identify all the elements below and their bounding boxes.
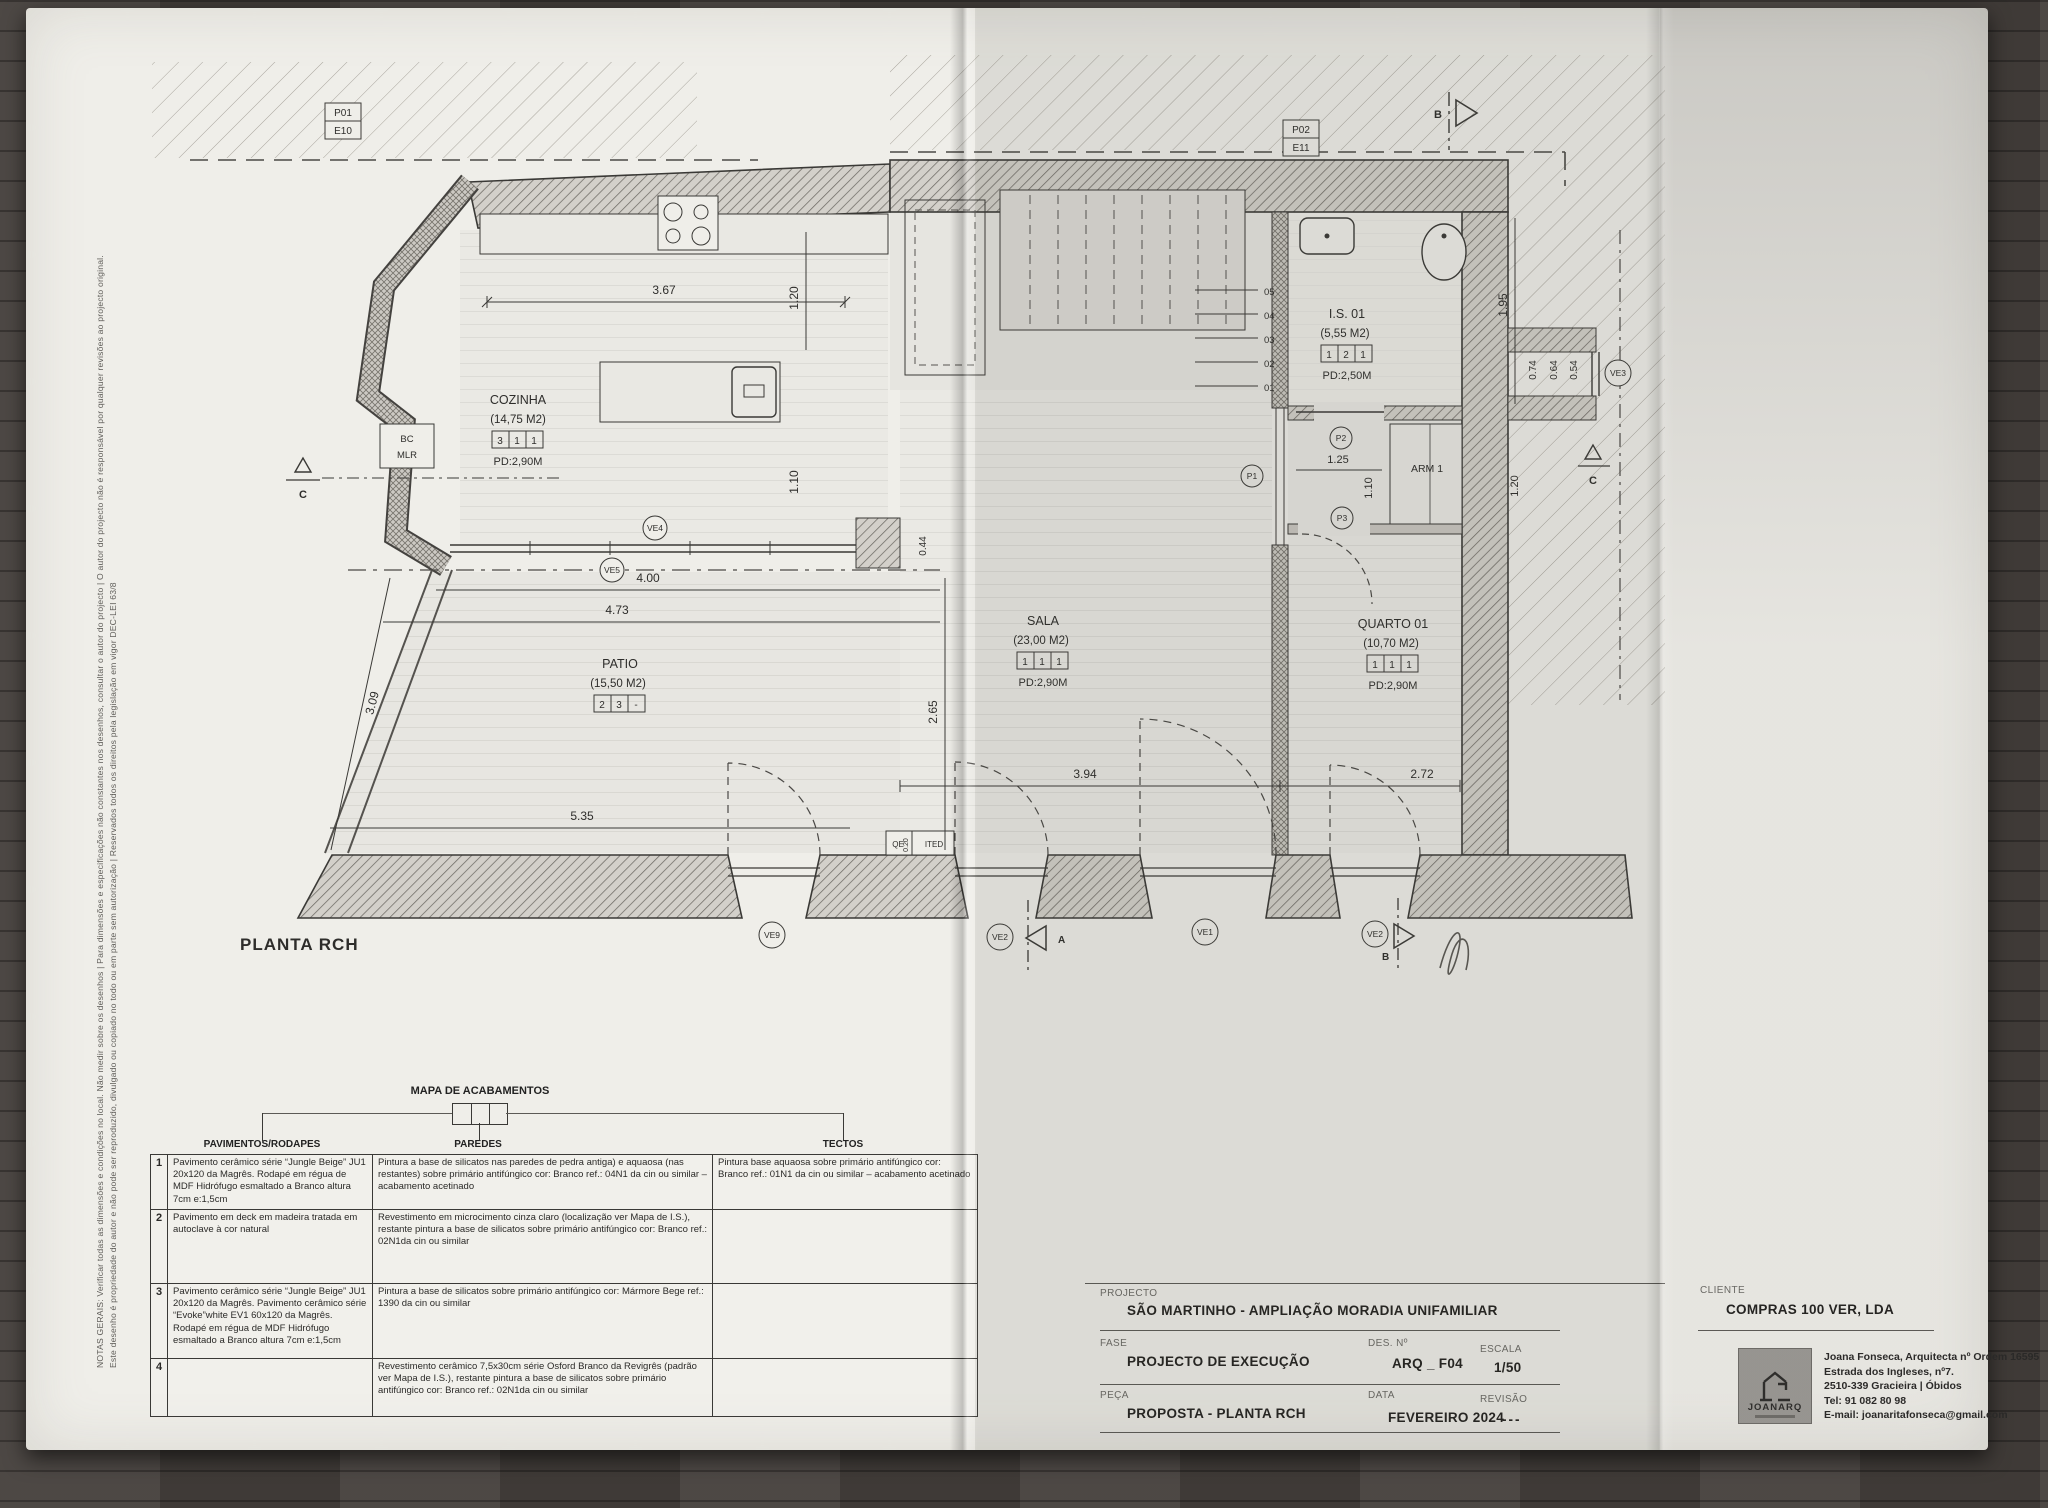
floor-plan-drawing: P01 E10 P02 E11 B ARM 1 xyxy=(0,0,2048,1060)
svg-text:P01: P01 xyxy=(334,108,352,119)
svg-text:C: C xyxy=(1589,475,1597,487)
svg-text:1: 1 xyxy=(1039,657,1045,668)
col-header-paredes: PAREDES xyxy=(408,1139,548,1150)
wall-facade-a xyxy=(298,855,742,918)
field-value-escala: 1/50 xyxy=(1494,1360,1521,1375)
cell-paredes: Revestimento em microcimento cinza claro… xyxy=(373,1210,713,1283)
row-number: 1 xyxy=(151,1155,168,1209)
dim-110a: 1.10 xyxy=(787,470,801,494)
bc-mlr-box: BC MLR xyxy=(380,424,434,468)
dim-265: 2.65 xyxy=(926,700,940,724)
marker-p1: P1 xyxy=(1247,471,1258,481)
contact-line: E-mail: joanaritafonseca@gmail.com xyxy=(1824,1408,2039,1423)
glazed-wall xyxy=(450,545,858,552)
svg-text:B: B xyxy=(1382,952,1389,963)
svg-text:1: 1 xyxy=(1360,350,1366,361)
room-label: SALA xyxy=(1027,614,1060,628)
cell-tectos: Pintura base aquaosa sobre primário anti… xyxy=(713,1155,977,1209)
svg-text:PD:2,90M: PD:2,90M xyxy=(1369,680,1418,692)
svg-text:3: 3 xyxy=(616,700,622,711)
wall-niche-top xyxy=(1508,328,1596,352)
pillar xyxy=(856,518,900,568)
marker-ve5: VE5 xyxy=(604,565,620,575)
svg-text:1: 1 xyxy=(1326,350,1332,361)
dim-125: 1.25 xyxy=(1327,454,1348,466)
marker-ve1: VE1 xyxy=(1197,927,1213,937)
toilet-icon xyxy=(1422,224,1466,280)
field-label-peca: PEÇA xyxy=(1100,1390,1129,1401)
svg-text:01: 01 xyxy=(1264,383,1275,394)
dim-020: 0.20 xyxy=(903,838,910,852)
joanarq-logo: JOANARQ xyxy=(1738,1348,1812,1424)
dim-044: 0.44 xyxy=(918,536,929,556)
washbasin-icon xyxy=(1300,218,1354,254)
contact-line: Estrada dos Ingleses, nº7. xyxy=(1824,1365,2039,1380)
field-label-des: DES. Nº xyxy=(1368,1338,1408,1349)
field-label-data: DATA xyxy=(1368,1390,1395,1401)
field-value-peca: PROPOSTA - PLANTA RCH xyxy=(1127,1406,1306,1421)
svg-text:PD:2,50M: PD:2,50M xyxy=(1323,370,1372,382)
field-label-cliente: CLIENTE xyxy=(1700,1285,1745,1296)
svg-text:1: 1 xyxy=(1022,657,1028,668)
field-value-revisao: --- xyxy=(1502,1412,1522,1427)
general-notes: NOTAS GERAIS: Verificar todas as dimensõ… xyxy=(94,133,120,1368)
dim-535: 5.35 xyxy=(570,809,594,823)
wall-facade-e xyxy=(1408,855,1632,918)
dim-120a: 1.20 xyxy=(787,286,801,310)
room-label: QUARTO 01 xyxy=(1358,617,1428,631)
marker-ve3: VE3 xyxy=(1610,368,1626,378)
svg-text:1: 1 xyxy=(1056,657,1062,668)
cell-tectos xyxy=(713,1210,977,1283)
marker-ve4: VE4 xyxy=(647,523,663,533)
architect-contact: Joana Fonseca, Arquitecta nº Ordem 16595… xyxy=(1824,1350,2039,1423)
svg-text:-: - xyxy=(634,700,637,711)
row-number: 2 xyxy=(151,1210,168,1283)
dim-272: 2.72 xyxy=(1410,767,1434,781)
firm-name: JOANARQ xyxy=(1748,1402,1803,1413)
svg-text:1: 1 xyxy=(1389,660,1395,671)
field-label-projecto: PROJECTO xyxy=(1100,1288,1157,1299)
room-label: COZINHA xyxy=(490,393,547,407)
cell-paredes: Pintura a base de silicatos nas paredes … xyxy=(373,1155,713,1209)
cell-paredes: Pintura a base de silicatos sobre primár… xyxy=(373,1284,713,1358)
col-header-pavimentos: PAVIMENTOS/RODAPES xyxy=(172,1139,352,1150)
marker-ve2a: VE2 xyxy=(992,932,1008,942)
door-p1-opening xyxy=(1276,408,1284,545)
marker-ve9: VE9 xyxy=(764,930,780,940)
marker-p2: P2 xyxy=(1336,433,1347,443)
signature xyxy=(1440,933,1468,974)
field-value-data: FEVEREIRO 2024 xyxy=(1388,1410,1504,1425)
cell-pavimentos: Pavimento em deck em madeira tratada em … xyxy=(168,1210,373,1283)
field-value-des: ARQ _ F04 xyxy=(1392,1356,1463,1371)
svg-text:1: 1 xyxy=(514,436,520,447)
cell-pavimentos: Pavimento cerâmico série “Jungle Beige” … xyxy=(168,1155,373,1209)
wall-partition-upper xyxy=(1272,212,1288,408)
kitchen-island xyxy=(600,362,780,422)
hatch-existing-top-left xyxy=(152,62,697,158)
dim-054: 0.54 xyxy=(1569,360,1580,380)
svg-text:PD:2,90M: PD:2,90M xyxy=(1019,677,1068,689)
svg-text:04: 04 xyxy=(1264,311,1275,322)
svg-text:(15,50 M2): (15,50 M2) xyxy=(590,678,646,690)
field-label-fase: FASE xyxy=(1100,1338,1127,1349)
stove-icon xyxy=(658,196,718,250)
general-notes-line2: Este desenho é propriedade do autor e nã… xyxy=(107,133,120,1368)
marker-ve2b: VE2 xyxy=(1367,929,1383,939)
svg-text:BC: BC xyxy=(400,434,413,445)
wall-facade-b xyxy=(806,855,968,918)
svg-text:1: 1 xyxy=(1406,660,1412,671)
row-number: 4 xyxy=(151,1359,168,1416)
svg-text:1: 1 xyxy=(531,436,537,447)
marker-p3: P3 xyxy=(1337,513,1348,523)
dim-120b: 1.20 xyxy=(1509,475,1521,496)
svg-text:2: 2 xyxy=(1343,350,1349,361)
svg-text:2: 2 xyxy=(599,700,605,711)
field-value-projecto: SÃO MARTINHO - AMPLIAÇÃO MORADIA UNIFAMI… xyxy=(1127,1303,1498,1318)
cell-paredes: Revestimento cerâmico 7,5x30cm série Osf… xyxy=(373,1359,713,1416)
finishes-title: MAPA DE ACABAMENTOS xyxy=(390,1085,570,1097)
svg-text:A: A xyxy=(1058,935,1065,946)
door-gap-is xyxy=(1314,402,1384,424)
dim-394: 3.94 xyxy=(1073,767,1097,781)
cell-pavimentos: Pavimento cerâmico série “Jungle Beige” … xyxy=(168,1284,373,1358)
svg-text:(23,00 M2): (23,00 M2) xyxy=(1013,635,1069,647)
room-label: I.S. 01 xyxy=(1329,307,1365,321)
dim-074: 0.74 xyxy=(1528,360,1539,380)
house-icon xyxy=(1758,1370,1792,1402)
dim-110b: 1.10 xyxy=(1363,477,1375,498)
finishes-table: 1 Pavimento cerâmico série “Jungle Beige… xyxy=(150,1154,978,1417)
svg-text:03: 03 xyxy=(1264,335,1275,346)
ref-box-p01-e10: P01 E10 xyxy=(325,103,361,139)
plan-title: PLANTA RCH xyxy=(240,935,359,954)
svg-text:MLR: MLR xyxy=(397,450,417,461)
dim-367: 3.67 xyxy=(652,283,676,297)
svg-text:E11: E11 xyxy=(1292,143,1309,154)
old-stone-wall xyxy=(368,182,470,566)
svg-text:ARM 1: ARM 1 xyxy=(1411,463,1443,475)
col-header-tectos: TECTOS xyxy=(773,1139,913,1150)
field-value-fase: PROJECTO DE EXECUÇÃO xyxy=(1127,1354,1310,1369)
svg-text:PD:2,90M: PD:2,90M xyxy=(494,456,543,468)
closet-arm1: ARM 1 xyxy=(1390,424,1462,524)
wall-facade-d xyxy=(1266,855,1340,918)
table-row: 3 Pavimento cerâmico série “Jungle Beige… xyxy=(151,1284,977,1359)
svg-text:(5,55 M2): (5,55 M2) xyxy=(1320,328,1369,340)
wall-facade-c xyxy=(1036,855,1152,918)
stairs-upper xyxy=(1000,190,1245,330)
svg-text:E10: E10 xyxy=(334,126,352,137)
row-number: 3 xyxy=(151,1284,168,1358)
table-row: 1 Pavimento cerâmico série “Jungle Beige… xyxy=(151,1155,977,1210)
svg-text:02: 02 xyxy=(1264,359,1275,370)
table-row: 4 Revestimento cerâmico 7,5x30cm série O… xyxy=(151,1359,977,1416)
svg-text:C: C xyxy=(299,489,307,501)
wall-niche-bottom xyxy=(1508,396,1596,420)
table-row: 2 Pavimento em deck em madeira tratada e… xyxy=(151,1210,977,1284)
dim-473: 4.73 xyxy=(605,603,629,617)
field-label-revisao: REVISÃO xyxy=(1480,1394,1527,1405)
general-notes-line1: NOTAS GERAIS: Verificar todas as dimensõ… xyxy=(94,133,107,1368)
dim-064: 0.64 xyxy=(1549,360,1560,380)
finishes-legend-box xyxy=(452,1103,508,1125)
cell-tectos xyxy=(713,1284,977,1358)
cell-pavimentos xyxy=(168,1359,373,1416)
field-label-escala: ESCALA xyxy=(1480,1344,1522,1355)
svg-text:B: B xyxy=(1434,109,1442,121)
svg-text:3: 3 xyxy=(497,436,503,447)
room-is01: I.S. 01 (5,55 M2) 1 2 1 PD:2,50M xyxy=(1320,307,1372,382)
svg-text:05: 05 xyxy=(1264,287,1275,298)
contact-line: 2510-339 Gracieira | Óbidos xyxy=(1824,1379,2039,1394)
ref-box-p02-e11: P02 E11 xyxy=(1283,120,1319,156)
svg-text:ITED: ITED xyxy=(925,840,943,849)
contact-line: Tel: 91 082 80 98 xyxy=(1824,1394,2039,1409)
svg-text:1: 1 xyxy=(1372,660,1378,671)
qe-ited-box: QE ITED 0.20 xyxy=(886,831,954,855)
room-cozinha: COZINHA (14,75 M2) 3 1 1 PD:2,90M xyxy=(490,393,547,468)
cell-tectos xyxy=(713,1359,977,1416)
svg-text:(10,70 M2): (10,70 M2) xyxy=(1363,638,1419,650)
wall-partition-lower xyxy=(1272,545,1288,855)
field-value-cliente: COMPRAS 100 VER, LDA xyxy=(1726,1302,1894,1317)
contact-line: Joana Fonseca, Arquitecta nº Ordem 16595 xyxy=(1824,1350,2039,1365)
dim-400: 4.00 xyxy=(636,571,660,585)
room-label: PATIO xyxy=(602,657,638,671)
dim-195: 1.95 xyxy=(1496,293,1510,317)
svg-text:P02: P02 xyxy=(1292,125,1310,136)
svg-text:(14,75 M2): (14,75 M2) xyxy=(490,414,546,426)
